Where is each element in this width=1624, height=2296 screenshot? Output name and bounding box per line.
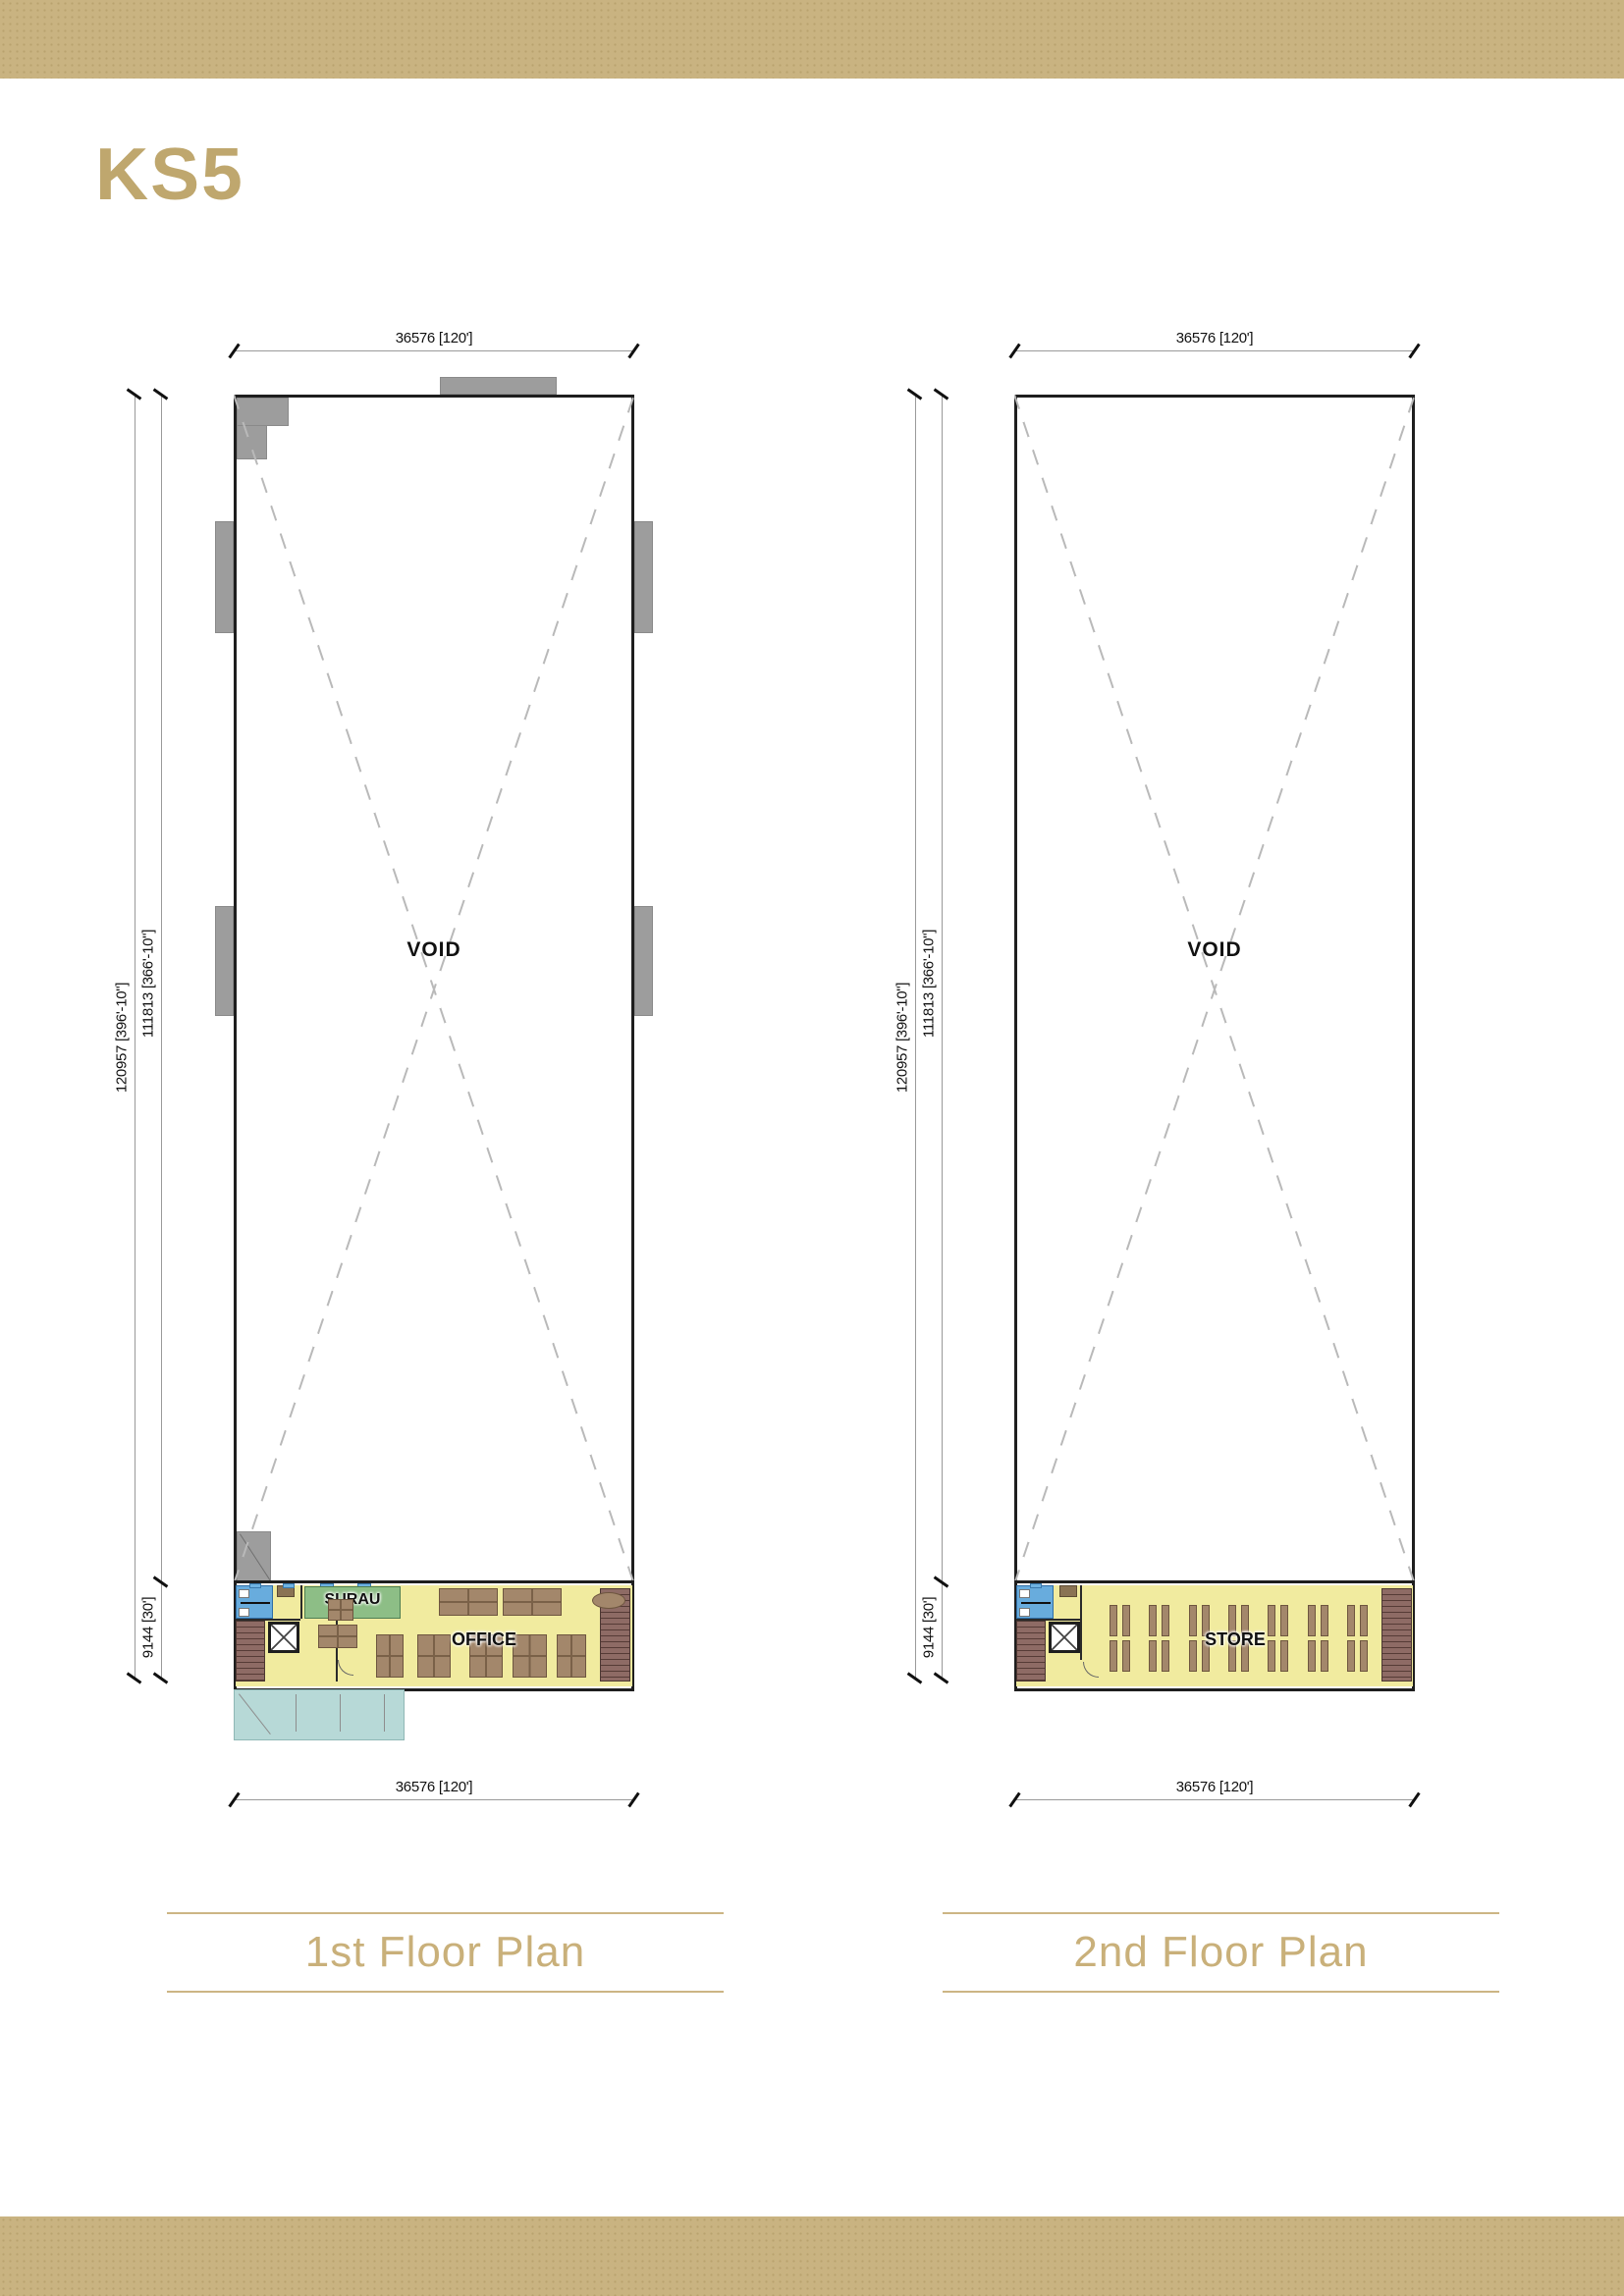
void-label: VOID <box>234 938 634 962</box>
void-label: VOID <box>1014 938 1415 962</box>
desk-cluster <box>376 1634 404 1678</box>
storage-rack <box>1360 1640 1368 1672</box>
dim-width-bottom: 36576 [120'] <box>1014 1779 1415 1795</box>
dim-width-bottom: 36576 [120'] <box>234 1779 634 1795</box>
dim-upper-height: 111813 [366'-10"] <box>140 930 157 1038</box>
wall-tab-right-2 <box>634 906 653 1016</box>
dim-line-upper <box>161 395 162 1679</box>
caption-first-floor: 1st Floor Plan <box>167 1912 724 1993</box>
desk-cluster <box>318 1625 357 1648</box>
dim-line-overall <box>135 395 135 1679</box>
dim-overall-height: 120957 [396'-10"] <box>114 983 131 1093</box>
dim-upper-height: 111813 [366'-10"] <box>921 930 938 1038</box>
storage-rack <box>1122 1640 1130 1672</box>
dim-line-overall <box>915 395 916 1679</box>
dim-line-bottom <box>234 1799 634 1800</box>
top-gold-band <box>0 0 1624 79</box>
roof-tab-top <box>440 377 557 395</box>
storage-rack <box>1321 1640 1328 1672</box>
storage-rack <box>1110 1605 1117 1636</box>
dim-lower-height: 9144 [30'] <box>140 1597 157 1658</box>
void-area <box>234 395 634 1583</box>
wall-tab-right-1 <box>634 521 653 633</box>
dim-lower-height: 9144 [30'] <box>921 1597 938 1658</box>
wall-tab-left-2 <box>215 906 234 1016</box>
bottom-gold-band <box>0 2216 1624 2296</box>
caption-text: 1st Floor Plan <box>305 1928 585 1977</box>
dim-width-top: 36576 [120'] <box>234 330 634 347</box>
first-floor-plan-drawing: 36576 [120'] 36576 [120'] 120957 [396'-1… <box>234 395 634 1691</box>
meeting-table <box>592 1592 625 1609</box>
entrance-canopy <box>234 1689 405 1740</box>
storage-rack <box>1149 1605 1157 1636</box>
dim-width-top: 36576 [120'] <box>1014 330 1415 347</box>
caption-second-floor: 2nd Floor Plan <box>943 1912 1499 1993</box>
desk-cluster <box>328 1599 353 1621</box>
desk-cluster <box>439 1588 498 1616</box>
storage-rack <box>1347 1640 1355 1672</box>
desk-cluster <box>503 1588 562 1616</box>
wall-tab-left-1 <box>215 521 234 633</box>
storage-rack <box>1347 1605 1355 1636</box>
office-label: OFFICE <box>410 1629 558 1650</box>
store-section: STORE <box>1014 1580 1415 1688</box>
storage-rack <box>1321 1605 1328 1636</box>
storage-rack <box>1110 1640 1117 1672</box>
void-area <box>1014 395 1415 1583</box>
page-title: KS5 <box>95 137 244 211</box>
storage-rack <box>1149 1640 1157 1672</box>
caption-text: 2nd Floor Plan <box>1073 1928 1368 1977</box>
dim-line-top <box>1014 350 1415 351</box>
desk-cluster <box>557 1634 586 1678</box>
dim-line-bottom <box>1014 1799 1415 1800</box>
dim-overall-height: 120957 [396'-10"] <box>894 983 911 1093</box>
dim-line-upper <box>942 395 943 1679</box>
storage-rack <box>1360 1605 1368 1636</box>
second-floor-plan-drawing: 36576 [120'] 36576 [120'] 120957 [396'-1… <box>1014 395 1415 1691</box>
storage-rack <box>1122 1605 1130 1636</box>
office-section: SURAU OFFICE <box>234 1580 634 1688</box>
store-label: STORE <box>1162 1629 1309 1650</box>
dim-line-top <box>234 350 634 351</box>
